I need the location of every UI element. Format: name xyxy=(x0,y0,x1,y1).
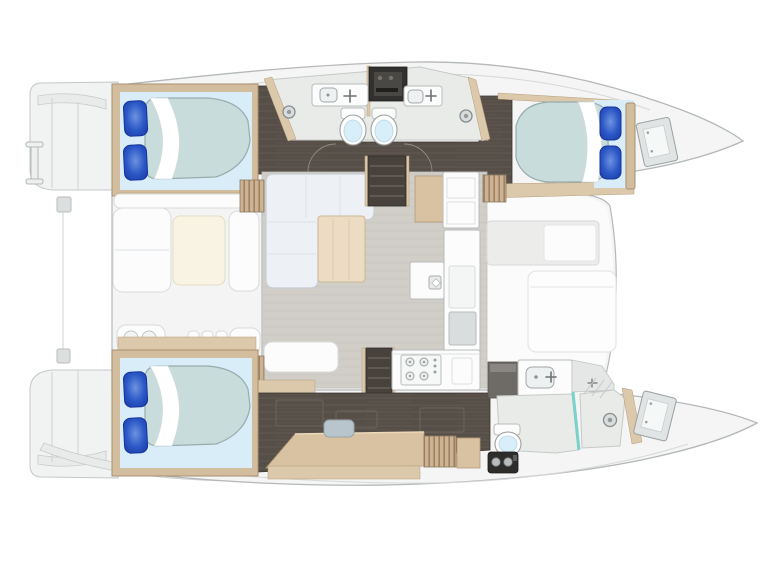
cockpit-bench xyxy=(229,211,259,291)
cockpit-back-cushion xyxy=(114,194,260,208)
foredeck-lounge-pad xyxy=(528,271,616,352)
pillow xyxy=(600,146,621,179)
shower-head-icon xyxy=(283,106,295,118)
slatted-shelf xyxy=(483,175,506,202)
shower-floor xyxy=(580,390,625,448)
vanity-port-aft xyxy=(312,84,368,106)
toilet xyxy=(340,108,366,145)
washing-machine xyxy=(369,67,407,101)
pillow xyxy=(123,417,148,453)
black-appliance xyxy=(488,452,518,473)
stairs-to-port-hull xyxy=(365,156,409,206)
pillow xyxy=(123,144,148,180)
deck-hatch xyxy=(544,225,596,261)
toilet xyxy=(494,424,521,456)
cleat xyxy=(57,349,70,363)
pillow xyxy=(123,100,148,136)
cockpit-table xyxy=(173,216,225,285)
sink xyxy=(408,90,423,103)
cabinet-recess xyxy=(449,266,475,308)
port-head xyxy=(264,66,490,145)
galley-island xyxy=(410,262,444,299)
catamaran-floorplan xyxy=(0,0,768,576)
pillow xyxy=(600,107,621,140)
cabin-shelf xyxy=(118,337,256,350)
vanity-port-forward xyxy=(404,86,442,106)
toilet xyxy=(371,108,397,145)
stool xyxy=(324,420,354,437)
cleat xyxy=(57,197,71,212)
starboard-aft-cabin xyxy=(112,337,258,476)
fridge-panel xyxy=(449,312,476,345)
shower-head-icon xyxy=(460,110,472,122)
stairs-to-starboard-hull xyxy=(362,348,395,394)
slatted-shelf xyxy=(240,180,264,212)
headboard xyxy=(626,103,635,189)
pillow xyxy=(123,371,148,407)
galley-forward-column xyxy=(444,230,480,363)
slatted-shelf xyxy=(424,436,456,467)
catamaran-floorplan-page xyxy=(0,0,768,576)
galley-wood-panel xyxy=(415,176,443,222)
salon-table xyxy=(318,216,365,282)
side-cabinet xyxy=(457,438,480,468)
port-aft-cabin xyxy=(112,84,258,206)
galley-upper-cabinet xyxy=(443,172,479,228)
salon-side-seat xyxy=(264,342,338,372)
stove xyxy=(401,355,441,385)
shower-head-icon xyxy=(604,414,617,427)
desk-step xyxy=(268,466,420,479)
vanity-starboard xyxy=(518,360,572,396)
galley-counter xyxy=(392,350,480,390)
corridor-shelf xyxy=(258,380,315,393)
